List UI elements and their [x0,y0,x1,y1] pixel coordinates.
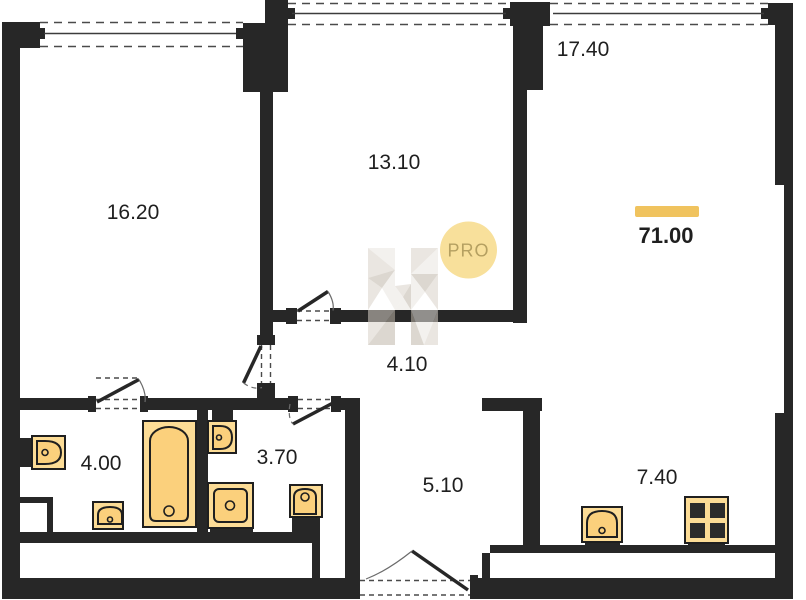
toilet-symbol-bathroom-4-00 [20,436,65,469]
room-label-3-70: 3.70 [257,446,298,469]
floor-plan-canvas: PRO 71.00 16.20 13.10 17.40 4.10 4.00 3.… [0,0,806,600]
room-label-7-40: 7.40 [637,466,678,489]
bathtub-symbol [143,421,196,527]
door-hallway-to-room-13-10 [297,292,333,321]
room-label-5-10: 5.10 [423,474,464,497]
room-label-4-10: 4.10 [387,353,428,376]
stove-symbol [685,497,728,553]
room-label-16-20: 16.20 [107,201,160,224]
total-area-block: 71.00 [635,206,699,248]
total-area-value: 71.00 [638,223,693,248]
kitchen-sink-symbol [582,507,622,553]
entrance-door [360,551,470,595]
pro-badge-label: PRO [447,241,489,261]
sink-symbol-bathroom-3-70 [208,410,236,453]
h-logo-watermark-icon [368,248,438,345]
room-label-4-00: 4.00 [81,452,122,475]
sink-symbol-bathroom-4-00 [93,502,123,529]
room-label-13-10: 13.10 [368,151,421,174]
toilet-symbol-bathroom-3-70 [290,485,322,533]
pro-badge: PRO [440,222,497,279]
total-area-accent-bar [635,206,699,217]
door-hallway-to-room-16-20 [244,345,271,388]
room-label-17-40: 17.40 [557,38,610,61]
washing-machine-symbol [208,483,253,534]
window-room-17-40 [550,4,768,25]
window-room-16-20 [40,23,243,47]
floor-plan: PRO 71.00 16.20 13.10 17.40 4.10 4.00 3.… [0,0,806,600]
window-room-13-10 [288,4,510,25]
door-room-16-20-to-bathroom-4-00 [96,378,145,409]
